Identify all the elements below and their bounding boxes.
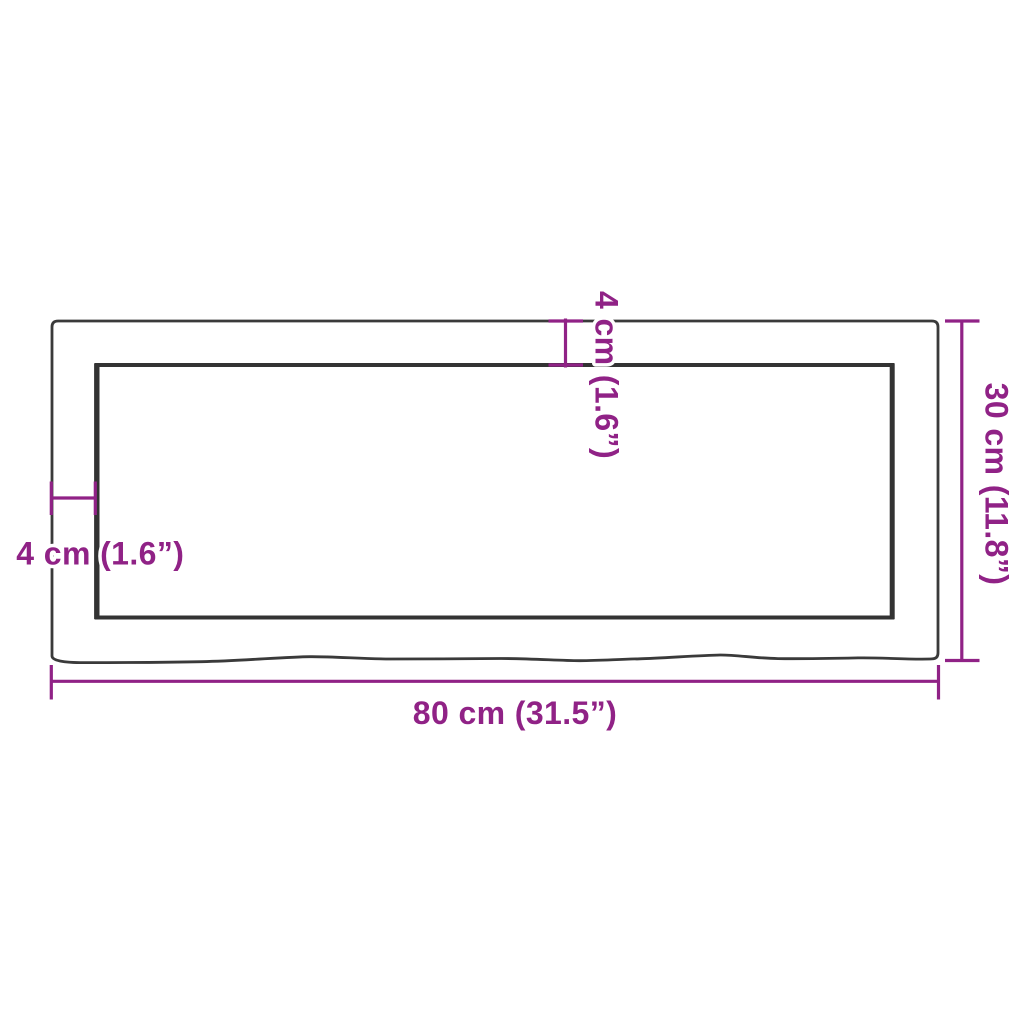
- svg-text:80 cm (31.5”): 80 cm (31.5”): [413, 695, 617, 731]
- svg-text:30 cm (11.8”): 30 cm (11.8”): [978, 383, 1014, 586]
- svg-text:4 cm (1.6”): 4 cm (1.6”): [589, 291, 625, 459]
- svg-text:4 cm (1.6”): 4 cm (1.6”): [16, 536, 184, 572]
